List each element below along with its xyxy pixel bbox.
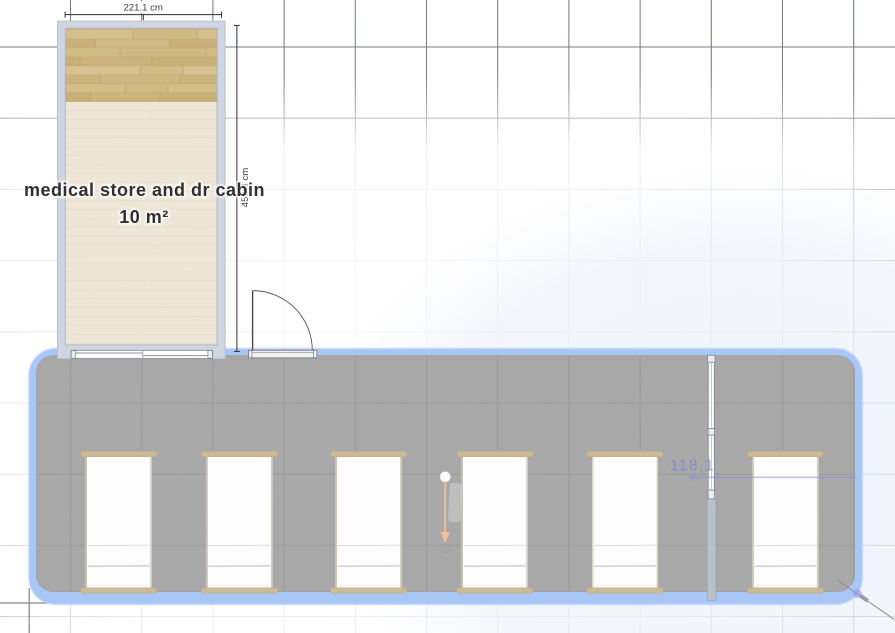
svg-text:10 m²: 10 m² xyxy=(119,207,169,227)
svg-text:118.1: 118.1 xyxy=(670,458,715,475)
svg-text:221.1 cm: 221.1 cm xyxy=(123,3,162,14)
svg-text:medical store and dr cabin: medical store and dr cabin xyxy=(24,180,265,200)
